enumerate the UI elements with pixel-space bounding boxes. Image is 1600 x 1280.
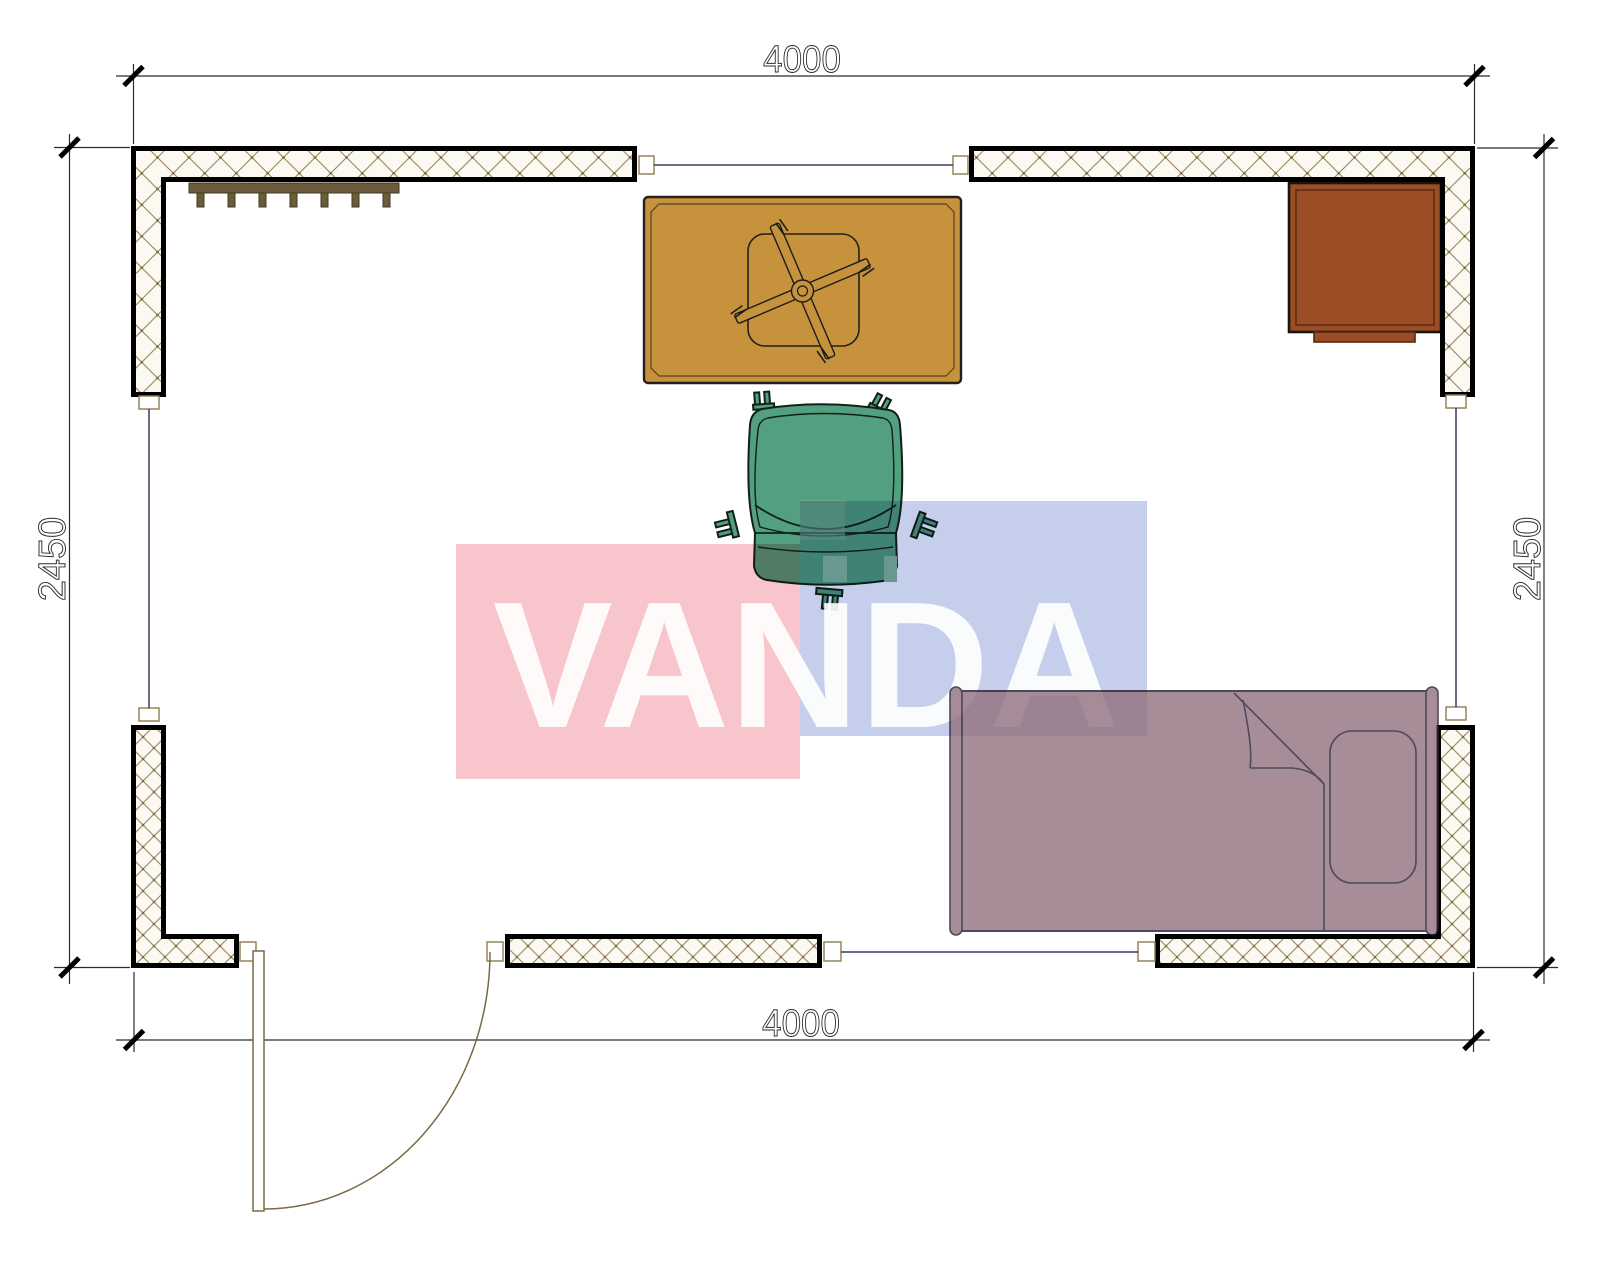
svg-text:2450: 2450 [1507,517,1549,602]
svg-text:4000: 4000 [763,38,841,81]
svg-text:2450: 2450 [32,517,74,602]
svg-text:4000: 4000 [762,1002,840,1045]
